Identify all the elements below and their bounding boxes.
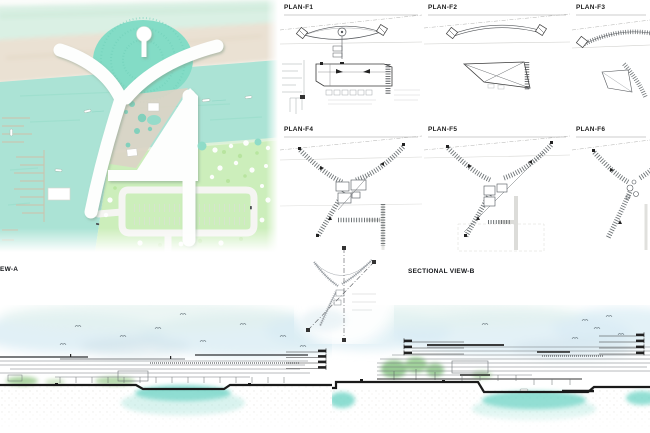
section-a-panel bbox=[0, 305, 332, 433]
plan-f2-label: PLAN-F2 bbox=[428, 4, 457, 11]
plan-f3-cell: PLAN-F3 bbox=[572, 2, 650, 124]
site-plan-panel bbox=[0, 0, 278, 252]
key-plan-drawing bbox=[294, 244, 394, 344]
presentation-board: PLAN-F1 bbox=[0, 0, 650, 433]
plan-f3-label: PLAN-F3 bbox=[576, 4, 605, 11]
section-b-label: SECTIONAL VIEW-B bbox=[408, 268, 475, 275]
section-a-drawing bbox=[0, 305, 332, 433]
key-plan-panel bbox=[294, 244, 394, 344]
plan-f4-drawing bbox=[280, 124, 422, 252]
plan-f4-cell: PLAN-F4 bbox=[280, 124, 422, 252]
plan-f4-label: PLAN-F4 bbox=[284, 126, 313, 133]
plan-f1-cell: PLAN-F1 bbox=[280, 2, 422, 124]
plan-f6-cell: PLAN-F6 bbox=[572, 124, 650, 252]
site-plan-drawing bbox=[0, 0, 278, 252]
plan-f3-drawing bbox=[572, 2, 650, 124]
plan-f1-drawing bbox=[280, 2, 422, 124]
plan-f5-drawing bbox=[424, 124, 570, 252]
plan-f5-cell: PLAN-F5 bbox=[424, 124, 570, 252]
plan-f6-label: PLAN-F6 bbox=[576, 126, 605, 133]
plan-f2-drawing bbox=[424, 2, 570, 124]
plan-f1-label: PLAN-F1 bbox=[284, 4, 313, 11]
plan-f5-label: PLAN-F5 bbox=[428, 126, 457, 133]
floor-plans-panel: PLAN-F1 bbox=[278, 0, 650, 255]
section-a-label: EW-A bbox=[0, 266, 18, 273]
plan-f6-drawing bbox=[572, 124, 650, 252]
plan-f2-cell: PLAN-F2 bbox=[424, 2, 570, 124]
